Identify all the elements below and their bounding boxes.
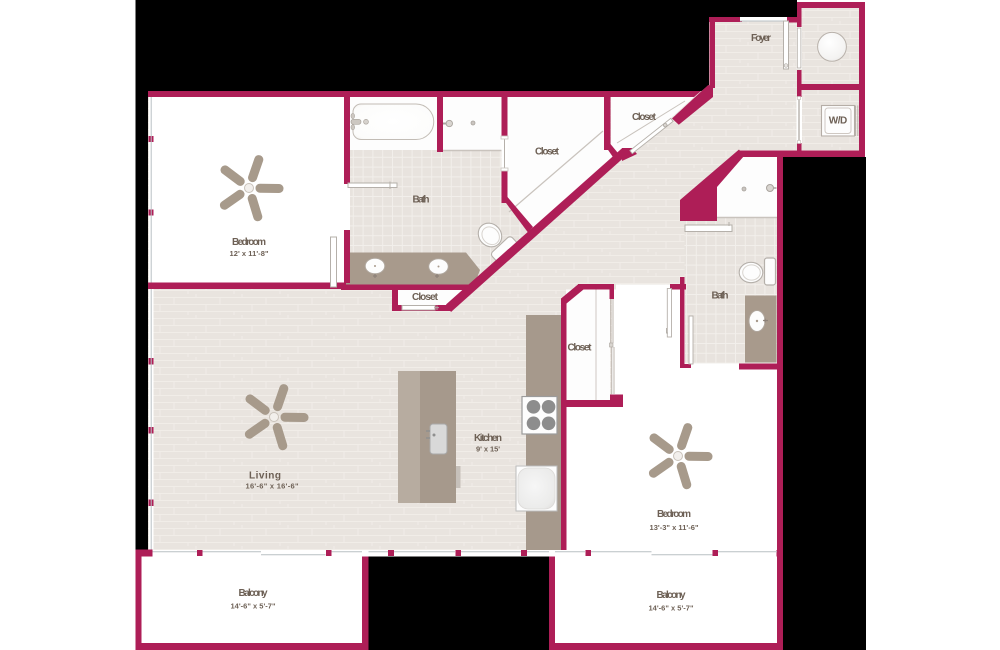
svg-text:Balcony: Balcony	[239, 588, 268, 599]
svg-text:9' x 15': 9' x 15'	[476, 445, 500, 454]
svg-text:Bedroom: Bedroom	[657, 509, 691, 520]
svg-text:Living: Living	[249, 471, 281, 482]
svg-text:Bedroom: Bedroom	[232, 237, 266, 248]
svg-text:Closet: Closet	[632, 112, 657, 123]
svg-text:Closet: Closet	[412, 292, 439, 303]
svg-text:14'-6" x 5'-7": 14'-6" x 5'-7"	[649, 604, 694, 613]
svg-text:Balcony: Balcony	[657, 590, 686, 601]
svg-text:Foyer: Foyer	[751, 33, 771, 44]
svg-text:Bath: Bath	[413, 195, 430, 206]
svg-text:Kitchen: Kitchen	[474, 433, 502, 444]
svg-text:16'-6" x 16'-6": 16'-6" x 16'-6"	[246, 482, 299, 491]
svg-text:12' x 11'-8": 12' x 11'-8"	[230, 249, 269, 258]
svg-text:Closet: Closet	[535, 147, 560, 158]
svg-text:14'-6" x 5'-7": 14'-6" x 5'-7"	[231, 602, 276, 611]
svg-text:Bath: Bath	[712, 291, 729, 302]
svg-text:Closet: Closet	[568, 343, 593, 354]
svg-text:W/D: W/D	[829, 116, 848, 127]
svg-text:13'-3" x 11'-6": 13'-3" x 11'-6"	[650, 523, 699, 532]
